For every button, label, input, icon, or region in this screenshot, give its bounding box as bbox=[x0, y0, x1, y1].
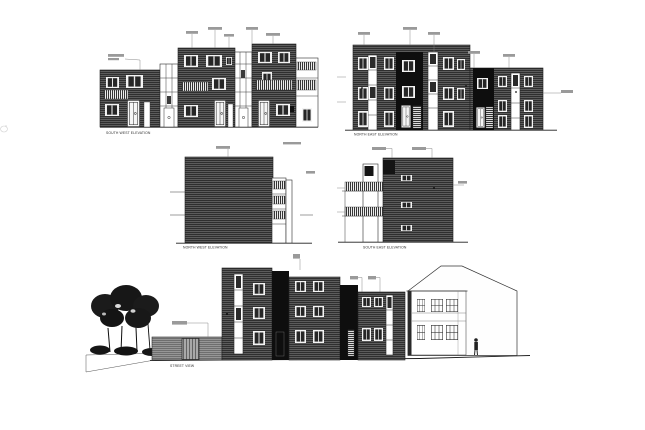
boundary-wall bbox=[152, 337, 222, 360]
balcony-bay bbox=[342, 164, 383, 242]
balcony-railing bbox=[104, 90, 128, 99]
south-west-elevation-caption: SOUTH WEST ELEVATION bbox=[106, 131, 151, 135]
side-wall bbox=[185, 157, 273, 243]
street-view-drawing: STREET VIEW bbox=[86, 254, 530, 372]
north-east-elevation-caption: NORTH EAST ELEVATION bbox=[354, 133, 398, 137]
terrace-block-a bbox=[100, 70, 160, 127]
glazed-stair-link bbox=[235, 52, 252, 127]
glazed-strip bbox=[386, 295, 393, 355]
street-view-caption: STREET VIEW bbox=[170, 364, 195, 368]
balcony-railing bbox=[182, 82, 208, 91]
entrance-bay bbox=[396, 52, 423, 130]
south-west-elevation-drawing: SOUTH WEST ELEVATION bbox=[100, 27, 318, 144]
north-west-elevation-drawing: NORTH WEST ELEVATION bbox=[170, 146, 315, 250]
proposed-building bbox=[222, 268, 405, 360]
balcony-bay bbox=[272, 178, 292, 243]
balcony-railing bbox=[256, 80, 292, 90]
north-east-elevation-drawing: NORTH EAST ELEVATION bbox=[337, 27, 573, 137]
glazed-strip bbox=[511, 73, 520, 130]
south-east-elevation-caption: SOUTH EAST ELEVATION bbox=[363, 246, 407, 250]
entrance-door bbox=[127, 100, 139, 126]
edge-smudge bbox=[1, 125, 8, 132]
recess-bay bbox=[272, 271, 289, 360]
glazed-stair-link bbox=[160, 64, 178, 127]
glazed-strip bbox=[234, 274, 243, 354]
end-balcony-bay bbox=[296, 58, 318, 127]
north-west-elevation-caption: NORTH WEST ELEVATION bbox=[183, 246, 228, 250]
entrance-door bbox=[401, 105, 411, 127]
glazed-strip bbox=[428, 52, 438, 130]
entrance-door bbox=[258, 100, 269, 126]
terrace-block-c bbox=[252, 44, 296, 127]
south-east-elevation-drawing: SOUTH EAST ELEVATION bbox=[337, 147, 468, 250]
elevations-artwork: SOUTH WEST ELEVATION bbox=[0, 0, 645, 430]
glazed-strip bbox=[368, 55, 377, 130]
terrace-block-b bbox=[178, 48, 235, 127]
gate bbox=[182, 339, 199, 360]
entrance-door bbox=[476, 107, 485, 128]
elevations-sheet: SOUTH WEST ELEVATION bbox=[0, 0, 645, 430]
existing-house bbox=[407, 266, 518, 356]
entrance-bay bbox=[473, 68, 494, 130]
entrance-door bbox=[214, 100, 225, 126]
